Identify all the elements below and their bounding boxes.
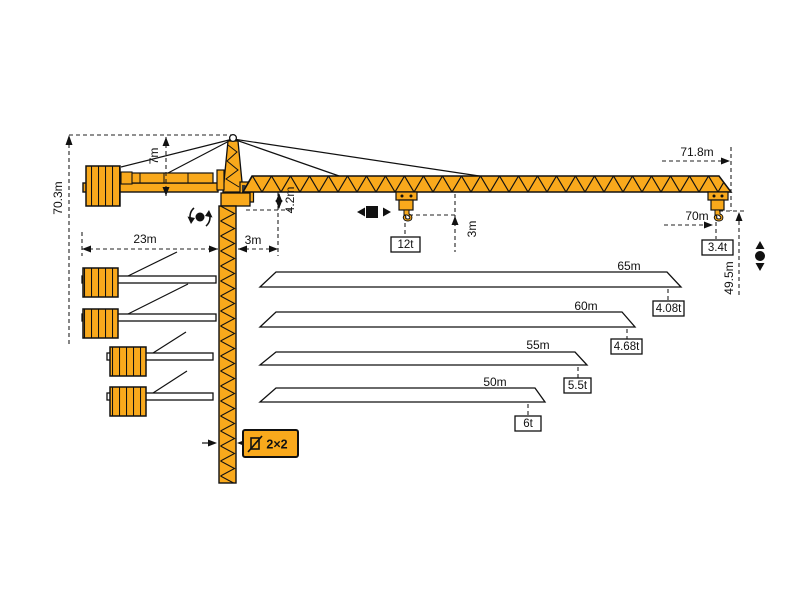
jib-variant-capacity: 5.5t [568, 380, 588, 392]
dim-total-height-label: 70.3m [51, 181, 65, 214]
jib-variant-55m: 55m 5.5t [260, 338, 591, 393]
trolley-travel-icon [357, 206, 391, 218]
jib-variant-length: 50m [483, 375, 506, 389]
pendant-lines [121, 139, 486, 177]
crane-structure [83, 135, 731, 483]
mast-section-callout: 2×2 [202, 430, 298, 457]
dim-hook-height-label: 49.5m [722, 261, 736, 294]
counterweight-configurations [82, 252, 216, 416]
dim-hook-clearance-label: 3m [465, 221, 479, 238]
counterweight-row [107, 332, 213, 376]
tip-trolley [708, 192, 728, 221]
crane-diagram: 70.3m 7m 23m 3m 4.2m [0, 0, 800, 600]
jib-variant-50m: 50m 6t [260, 375, 545, 431]
jib-variant-65m: 65m 4.08t [260, 259, 684, 316]
max-capacity-callout: 12t [391, 223, 420, 252]
jib-variant-length: 65m [617, 259, 640, 273]
hook-icon [714, 210, 723, 221]
mast-section-label: 2×2 [266, 438, 287, 452]
dim-tip-radius: 70m [664, 209, 716, 239]
counterweight-block [86, 166, 120, 206]
dim-counterjib-radius-label: 23m [133, 232, 156, 246]
tip-capacity-callout: 3.4t [702, 240, 733, 255]
slewing-platform [221, 193, 250, 206]
crane-diagram-page: 70.3m 7m 23m 3m 4.2m [0, 0, 800, 600]
jib [243, 176, 731, 192]
dim-tip-radius-label: 70m [685, 209, 708, 223]
dim-rear-offset-label: 3m [245, 233, 262, 247]
tower-mast [219, 206, 236, 483]
tower-head [217, 135, 243, 192]
jib-variant-length: 60m [574, 299, 597, 313]
max-capacity-label: 12t [398, 239, 415, 251]
counterweight-row [107, 371, 213, 416]
jib-variant-length: 55m [526, 338, 549, 352]
dim-cathead-label: 7m [147, 148, 161, 165]
mid-trolley [396, 192, 417, 221]
jib-variant-60m: 60m 4.68t [260, 299, 642, 354]
jib-variant-capacity: 4.08t [656, 303, 682, 315]
counter-jib [83, 166, 218, 206]
dim-counterjib-radius: 23m [82, 232, 218, 256]
dim-jib-section-label: 4.2m [283, 187, 297, 214]
jib-variant-capacity: 4.68t [614, 341, 640, 353]
jib-variant-capacity: 6t [523, 418, 533, 430]
dim-max-radius-label: 71.8m [680, 145, 713, 159]
apex-pin [230, 135, 237, 142]
hoist-icon [755, 241, 765, 271]
counterweight-row [82, 252, 216, 297]
tip-capacity-label: 3.4t [708, 242, 728, 254]
slew-icon [188, 208, 213, 226]
